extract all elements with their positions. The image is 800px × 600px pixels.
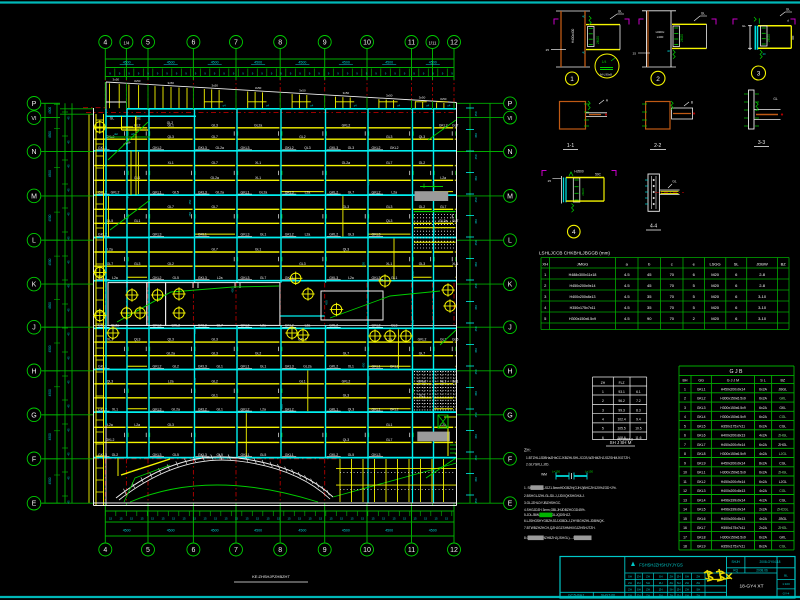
- svg-text:450: 450: [474, 219, 478, 224]
- svg-text:4x2A: 4x2A: [759, 517, 767, 521]
- svg-text:GKL2: GKL2: [329, 365, 338, 369]
- svg-text:ZHGL: ZHGL: [778, 443, 787, 447]
- svg-text:4500: 4500: [211, 61, 219, 65]
- svg-text:15: 15: [245, 517, 249, 521]
- svg-text:450: 450: [367, 180, 371, 185]
- svg-text:XL1: XL1: [386, 262, 392, 266]
- svg-text:GY-4: GY-4: [783, 592, 790, 596]
- svg-text:BZ: BZ: [781, 262, 787, 267]
- svg-text:4500: 4500: [48, 302, 52, 309]
- svg-text:GKL3: GKL3: [697, 406, 706, 410]
- svg-text:15: 15: [308, 517, 312, 521]
- svg-text:4x2A: 4x2A: [759, 498, 767, 502]
- svg-text:2M20: 2M20: [596, 36, 600, 44]
- svg-text:GKL2: GKL2: [198, 407, 207, 411]
- svg-text:L2a: L2a: [440, 176, 446, 180]
- svg-text:ZH: ZH: [637, 581, 641, 585]
- svg-text:GKL1: GKL1: [241, 365, 250, 369]
- svg-text:450: 450: [474, 455, 478, 460]
- svg-text:ZH: ZH: [670, 575, 674, 579]
- svg-text:GL1: GL1: [134, 176, 141, 180]
- svg-text:GL2: GL2: [419, 161, 426, 165]
- svg-text:450: 450: [361, 362, 365, 367]
- svg-text:GL7: GL7: [419, 351, 426, 355]
- svg-text:ZH: ZH: [685, 581, 689, 585]
- svg-text:6x2A: 6x2A: [759, 443, 767, 447]
- svg-text:GL7: GL7: [260, 276, 267, 280]
- svg-text:2008-GY04-18: 2008-GY04-18: [760, 560, 781, 564]
- svg-text:450: 450: [474, 326, 478, 331]
- svg-text:9: 9: [323, 40, 327, 47]
- svg-text:JMGG: JMGG: [577, 262, 589, 267]
- svg-text:H350x175x7x11: H350x175x7x11: [721, 545, 745, 549]
- svg-text:GL2a: GL2a: [342, 161, 350, 165]
- svg-text:9: 9: [684, 461, 686, 465]
- svg-text:15: 15: [434, 517, 438, 521]
- svg-text:GL3: GL3: [134, 262, 141, 266]
- svg-text:SHJH: SHJH: [732, 560, 741, 564]
- svg-text:15: 15: [130, 517, 134, 521]
- svg-text:5: 5: [146, 40, 150, 47]
- svg-text:1/11: 1/11: [429, 41, 438, 46]
- svg-text:70: 70: [670, 272, 675, 277]
- svg-text:4500: 4500: [342, 529, 350, 533]
- svg-text:ZHCGL: ZHCGL: [777, 508, 789, 512]
- svg-text:FSHSHJZHSHJYJYGS: FSHSHJZHSHJYJYGS: [639, 563, 683, 568]
- svg-text:GL3: GL3: [343, 205, 350, 209]
- svg-text:G: G: [507, 412, 512, 419]
- svg-text:G J B: G J B: [730, 369, 744, 375]
- svg-text:SH J SH M: SH J SH M: [610, 440, 632, 445]
- svg-text:M20: M20: [711, 272, 720, 277]
- svg-text:GKL4: GKL4: [697, 498, 706, 502]
- svg-text:3x50: 3x50: [134, 79, 141, 83]
- svg-text:450: 450: [474, 369, 478, 374]
- svg-text:GL3: GL3: [343, 393, 350, 397]
- svg-text:4500: 4500: [298, 61, 306, 65]
- svg-text:H496x199x9x14: H496x199x9x14: [721, 498, 746, 502]
- svg-text:GKL3: GKL3: [198, 276, 207, 280]
- svg-text:45: 45: [647, 283, 652, 288]
- svg-text:SH: SH: [659, 594, 663, 598]
- svg-text:H300x150x6.5x9: H300x150x6.5x9: [720, 452, 746, 456]
- svg-text:4.5: 4.5: [624, 272, 630, 277]
- svg-text:GKL3: GKL3: [372, 233, 381, 237]
- svg-text:H300x150x6.5x9: H300x150x6.5x9: [720, 406, 746, 410]
- svg-text:SHGT-06: SHGT-06: [601, 594, 615, 598]
- svg-text:H450x200x9x14: H450x200x9x14: [721, 480, 746, 484]
- svg-text:M-L90x8: M-L90x8: [600, 73, 612, 77]
- svg-text:4500: 4500: [48, 389, 52, 396]
- svg-text:GKL: GKL: [779, 406, 786, 410]
- svg-text:4500: 4500: [429, 61, 437, 65]
- svg-text:WM: WM: [541, 473, 547, 477]
- svg-text:3.GLJZHLDYJBZHSHGC.: 3.GLJZHLDYJBZHSHGC.: [524, 501, 561, 505]
- svg-text:GL3: GL3: [391, 324, 398, 328]
- svg-text:45: 45: [67, 140, 71, 144]
- svg-text:SH: SH: [685, 575, 689, 579]
- svg-text:GKL: GKL: [779, 535, 786, 539]
- svg-text:3-3: 3-3: [758, 140, 765, 146]
- svg-text:2x2A: 2x2A: [759, 526, 767, 530]
- svg-text:M20: M20: [711, 305, 720, 310]
- svg-text:XL1: XL1: [348, 365, 354, 369]
- svg-text:GL7: GL7: [348, 190, 355, 194]
- svg-text:GL7: GL7: [211, 205, 218, 209]
- svg-text:SH: SH: [669, 588, 673, 592]
- svg-text:4500: 4500: [48, 477, 52, 484]
- svg-text:50C: 50C: [595, 173, 602, 177]
- svg-text:M: M: [507, 193, 513, 200]
- svg-text:105.5: 105.5: [617, 427, 625, 431]
- svg-text:CGL: CGL: [779, 425, 786, 429]
- svg-text:GKL1: GKL1: [697, 471, 706, 475]
- svg-text:H450x200x9x14: H450x200x9x14: [721, 443, 746, 447]
- svg-text:ZHGL: ZHGL: [778, 526, 787, 530]
- svg-text:H300x150x6.5x9: H300x150x6.5x9: [720, 415, 746, 419]
- svg-text:L2a: L2a: [305, 233, 311, 237]
- svg-text:45: 45: [647, 272, 652, 277]
- svg-text:B: B: [691, 101, 693, 105]
- svg-text:GKL2: GKL2: [285, 233, 294, 237]
- svg-text:GKL5: GKL5: [697, 425, 706, 429]
- svg-text:2M20: 2M20: [767, 34, 771, 42]
- svg-text:SH: SH: [646, 581, 650, 585]
- svg-text:GKL6: GKL6: [697, 517, 706, 521]
- svg-text:6x2A: 6x2A: [759, 415, 767, 419]
- svg-text:2: 2: [684, 397, 686, 401]
- svg-text:GKL1: GKL1: [372, 407, 381, 411]
- svg-text:15: 15: [109, 517, 113, 521]
- svg-text:3x50: 3x50: [440, 97, 447, 101]
- svg-text:del: del: [114, 132, 118, 136]
- svg-text:GL: GL: [110, 117, 115, 121]
- svg-text:GKL1: GKL1: [697, 388, 706, 392]
- svg-text:GL5: GL5: [348, 453, 355, 457]
- svg-text:450: 450: [474, 498, 478, 503]
- svg-text:4x2A: 4x2A: [759, 452, 767, 456]
- svg-text:5: 5: [684, 425, 686, 429]
- svg-text:GL2: GL2: [419, 205, 426, 209]
- svg-text:J: J: [508, 325, 512, 332]
- svg-text:450: 450: [474, 477, 478, 482]
- svg-text:P: P: [32, 101, 37, 108]
- svg-text:7: 7: [234, 40, 238, 47]
- svg-text:QL3: QL3: [107, 379, 114, 383]
- svg-text:450: 450: [474, 133, 478, 138]
- svg-text:GKL2: GKL2: [329, 190, 338, 194]
- svg-text:SH: SH: [628, 594, 632, 598]
- svg-text:10.5: 10.5: [635, 427, 642, 431]
- svg-text:ZH: ZH: [670, 594, 674, 598]
- svg-text:P: P: [508, 101, 513, 108]
- svg-text:1: 1: [684, 388, 686, 392]
- svg-text:GL: GL: [672, 180, 676, 184]
- svg-text:XL1: XL1: [452, 262, 458, 266]
- svg-text:15: 15: [203, 517, 207, 521]
- svg-text:3x50: 3x50: [167, 81, 174, 85]
- svg-text:GKL2: GKL2: [241, 407, 250, 411]
- svg-text:XH: XH: [542, 262, 548, 267]
- svg-text:45: 45: [67, 380, 71, 384]
- svg-text:GL3: GL3: [348, 233, 355, 237]
- svg-text:GKL3: GKL3: [285, 365, 294, 369]
- svg-text:35: 35: [647, 305, 652, 310]
- svg-text:GL3: GL3: [386, 205, 393, 209]
- svg-text:GKL6: GKL6: [697, 434, 706, 438]
- svg-text:45: 45: [67, 332, 71, 336]
- svg-text:GL2: GL2: [167, 121, 174, 125]
- svg-text:GKL2: GKL2: [285, 407, 294, 411]
- svg-text:x400: x400: [657, 35, 664, 39]
- svg-text:4500: 4500: [385, 61, 393, 65]
- svg-text:CGL: CGL: [779, 545, 786, 549]
- svg-text:QL3: QL3: [386, 219, 393, 223]
- svg-text:450: 450: [474, 348, 478, 353]
- svg-text:GL1: GL1: [216, 407, 223, 411]
- svg-text:45: 45: [67, 116, 71, 120]
- svg-text:SH: SH: [637, 588, 641, 592]
- svg-text:15: 15: [277, 517, 281, 521]
- svg-text:GL5: GL5: [452, 338, 459, 342]
- svg-text:GL1: GL1: [255, 248, 262, 252]
- svg-text:GKL3: GKL3: [241, 276, 250, 280]
- svg-text:GKL2: GKL2: [329, 233, 338, 237]
- svg-text:GL2a: GL2a: [216, 190, 224, 194]
- svg-text:ZH: ZH: [677, 588, 681, 592]
- svg-text:GKL9: GKL9: [697, 461, 706, 465]
- svg-text:H350x175x7x11: H350x175x7x11: [721, 526, 745, 530]
- svg-text:GKL3: GKL3: [372, 276, 381, 280]
- svg-text:N: N: [507, 149, 512, 156]
- svg-text:L2a: L2a: [305, 190, 311, 194]
- svg-text:H450x200x9x14: H450x200x9x14: [721, 461, 746, 465]
- svg-text:QL3: QL3: [343, 248, 350, 252]
- svg-text:GL3: GL3: [167, 423, 174, 427]
- svg-text:450: 450: [474, 111, 478, 116]
- svg-text:GL7: GL7: [386, 438, 393, 442]
- svg-text:GKL1: GKL1: [372, 365, 381, 369]
- svg-text:GL3: GL3: [386, 135, 393, 139]
- svg-text:GKL2: GKL2: [342, 379, 351, 383]
- svg-text:450: 450: [474, 262, 478, 267]
- svg-text:7.BTWBZHZHCH,QZHJGZSHMHXGJZHSH: 7.BTWBZHZHCH,QZHJGZSHMHXGJZHSHJTZH.: [524, 526, 596, 530]
- svg-text:L2a: L2a: [112, 276, 118, 280]
- svg-text:450: 450: [188, 199, 192, 204]
- svg-text:GL1: GL1: [452, 379, 459, 383]
- svg-text:1:100: 1:100: [782, 582, 790, 586]
- svg-text:GKL2: GKL2: [697, 480, 706, 484]
- svg-text:H350x175x7x11: H350x175x7x11: [721, 425, 745, 429]
- svg-text:GL2: GL2: [167, 262, 174, 266]
- svg-text:L2a: L2a: [348, 276, 354, 280]
- svg-text:5: 5: [602, 427, 604, 431]
- svg-text:450: 450: [188, 211, 192, 216]
- svg-text:GL7: GL7: [452, 123, 459, 127]
- svg-text:450: 450: [474, 240, 478, 245]
- svg-text:45: 45: [67, 308, 71, 312]
- svg-text:LJGL: LJGL: [779, 480, 787, 484]
- svg-text:GL2: GL2: [255, 351, 262, 355]
- svg-text:4.5: 4.5: [624, 283, 630, 288]
- svg-text:GL1: GL1: [211, 393, 218, 397]
- svg-text:450: 450: [474, 391, 478, 396]
- svg-text:15: 15: [350, 517, 354, 521]
- svg-text:GKL5: GKL5: [697, 508, 706, 512]
- svg-text:ZH: ZH: [637, 594, 641, 598]
- svg-text:3x50: 3x50: [419, 96, 426, 100]
- svg-text:4500: 4500: [254, 529, 262, 533]
- svg-text:GL1: GL1: [216, 365, 223, 369]
- svg-text:L: L: [32, 238, 36, 245]
- svg-text:GKL8: GKL8: [697, 535, 706, 539]
- svg-text:QL3: QL3: [304, 146, 311, 150]
- svg-text:GL3: GL3: [348, 146, 355, 150]
- svg-text:99.3: 99.3: [618, 408, 625, 412]
- svg-text:L2a: L2a: [107, 248, 113, 252]
- svg-text:GL: GL: [701, 12, 705, 16]
- svg-text:450: 450: [474, 283, 478, 288]
- svg-text:H400x: H400x: [656, 30, 665, 34]
- svg-text:4500: 4500: [167, 61, 175, 65]
- svg-text:15: 15: [683, 517, 687, 521]
- svg-text:4500: 4500: [48, 107, 52, 114]
- svg-text:2x2A: 2x2A: [759, 508, 767, 512]
- svg-text:GKL1: GKL1: [198, 233, 207, 237]
- svg-text:15: 15: [382, 517, 386, 521]
- svg-text:8.3: 8.3: [636, 408, 641, 412]
- svg-text:6x2A: 6x2A: [759, 397, 767, 401]
- svg-text:GL2a: GL2a: [254, 123, 262, 127]
- svg-text:GKL3: GKL3: [198, 365, 207, 369]
- svg-text:4: 4: [684, 415, 686, 419]
- svg-text:3x50: 3x50: [386, 94, 393, 98]
- svg-text:GL1: GL1: [134, 219, 141, 223]
- svg-text:GKL2: GKL2: [329, 324, 338, 328]
- svg-text:GL1: GL1: [260, 365, 267, 369]
- svg-text:GL1: GL1: [299, 379, 306, 383]
- svg-text:3: 3: [684, 406, 686, 410]
- svg-text:ZH:: ZH:: [524, 448, 531, 453]
- svg-text:13: 13: [683, 498, 687, 502]
- svg-text:25: 25: [548, 179, 552, 183]
- svg-text:7: 7: [234, 547, 238, 554]
- svg-text:6x2A: 6x2A: [759, 388, 767, 392]
- svg-text:15: 15: [329, 517, 333, 521]
- svg-text:GL3: GL3: [211, 338, 218, 342]
- svg-text:1/4: 1/4: [602, 60, 607, 64]
- svg-text:45: 45: [67, 428, 71, 432]
- svg-text:GKL3: GKL3: [241, 233, 250, 237]
- svg-text:ZH: ZH: [659, 588, 663, 592]
- svg-text:90: 90: [647, 316, 652, 321]
- svg-text:S L: S L: [760, 379, 765, 383]
- svg-text:QL3: QL3: [419, 135, 426, 139]
- svg-text:LSGG: LSGG: [710, 262, 721, 267]
- svg-text:450: 450: [474, 176, 478, 181]
- svg-text:GL2a: GL2a: [211, 176, 219, 180]
- svg-text:ZH: ZH: [646, 575, 650, 579]
- svg-text:wb: wb: [131, 132, 135, 136]
- svg-text:15: 15: [214, 517, 218, 521]
- svg-text:8: 8: [278, 40, 282, 47]
- svg-text:GL5: GL5: [107, 219, 114, 223]
- svg-text:GL2a: GL2a: [439, 219, 447, 223]
- svg-text:GKL3: GKL3: [697, 489, 706, 493]
- svg-text:GL7: GL7: [107, 262, 114, 266]
- svg-text:F: F: [508, 456, 512, 463]
- svg-text:45: 45: [67, 356, 71, 360]
- svg-text:GL2a: GL2a: [259, 190, 267, 194]
- svg-text:6: 6: [684, 434, 686, 438]
- svg-text:LJGL: LJGL: [779, 452, 787, 456]
- svg-text:GL3: GL3: [419, 262, 426, 266]
- svg-text:3-10: 3-10: [758, 305, 767, 310]
- svg-text:7: 7: [684, 443, 686, 447]
- svg-text:2-2: 2-2: [654, 143, 661, 149]
- svg-text:4500: 4500: [298, 529, 306, 533]
- svg-text:35: 35: [647, 294, 652, 299]
- svg-text:H400x200x8x13: H400x200x8x13: [721, 517, 746, 521]
- svg-text:H300x150x6.5x9: H300x150x6.5x9: [720, 535, 746, 539]
- svg-text:3x50: 3x50: [343, 91, 350, 95]
- svg-text:1: 1: [602, 390, 604, 394]
- svg-text:H300x150x6.5x9: H300x150x6.5x9: [569, 317, 596, 321]
- svg-text:18-GY4 XT: 18-GY4 XT: [740, 584, 764, 590]
- svg-text:H400x200x8x13: H400x200x8x13: [721, 434, 746, 438]
- svg-text:8x2A: 8x2A: [759, 461, 767, 465]
- svg-text:H450x200x9x14: H450x200x9x14: [570, 284, 596, 288]
- svg-text:GKL2: GKL2: [390, 365, 399, 369]
- svg-text:15: 15: [235, 517, 239, 521]
- svg-text:HJ500: HJ500: [574, 170, 583, 174]
- svg-text:GKL3: GKL3: [241, 146, 250, 150]
- svg-text:K: K: [32, 282, 37, 289]
- svg-text:15: 15: [140, 517, 144, 521]
- svg-text:XL1: XL1: [168, 161, 174, 165]
- svg-text:o4: o4: [426, 104, 429, 108]
- svg-text:3x50: 3x50: [211, 83, 218, 87]
- svg-text:GL7: GL7: [211, 135, 218, 139]
- svg-text:CGL: CGL: [779, 489, 786, 493]
- svg-text:14: 14: [683, 508, 687, 512]
- svg-text:GKL2: GKL2: [285, 146, 294, 150]
- svg-text:11: 11: [408, 40, 415, 47]
- svg-text:GL2a: GL2a: [172, 407, 180, 411]
- svg-text:H: H: [31, 368, 36, 375]
- svg-text:JBGL: JBGL: [779, 517, 788, 521]
- svg-text:GKL2: GKL2: [153, 365, 162, 369]
- svg-text:450: 450: [230, 287, 234, 292]
- svg-text:GKL1: GKL1: [329, 407, 338, 411]
- svg-text:8x2A: 8x2A: [759, 545, 767, 549]
- svg-text:L=150: L=150: [552, 470, 561, 474]
- svg-text:GL5: GL5: [172, 190, 179, 194]
- svg-text:GKL3: GKL3: [372, 453, 381, 457]
- svg-text:GKL3: GKL3: [198, 146, 207, 150]
- svg-text:4x2A: 4x2A: [759, 434, 767, 438]
- svg-text:5: 5: [146, 547, 150, 554]
- svg-text:1-1: 1-1: [567, 143, 574, 149]
- svg-text:ZH: ZH: [628, 588, 632, 592]
- svg-text:11: 11: [408, 547, 415, 554]
- svg-text:L2a: L2a: [391, 190, 397, 194]
- svg-text:15: 15: [371, 517, 375, 521]
- svg-text:45: 45: [67, 236, 71, 240]
- svg-text:M20: M20: [711, 316, 720, 321]
- svg-text:JDBW: JDBW: [756, 262, 768, 267]
- svg-text:GL2a: GL2a: [216, 146, 224, 150]
